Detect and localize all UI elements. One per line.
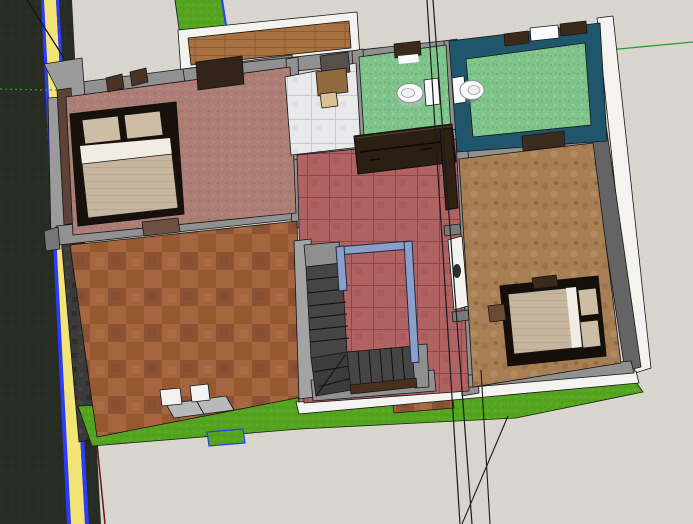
bed2-pillow-bottom xyxy=(580,320,601,348)
stair-landing-top[interactable] xyxy=(304,242,341,267)
desk-body xyxy=(316,68,348,96)
door-knob xyxy=(453,264,461,278)
wall-ledge-step[interactable] xyxy=(44,227,60,251)
white-door-frame-bottom xyxy=(452,310,469,322)
bath2-window-sill xyxy=(530,25,559,41)
lawn-notch[interactable] xyxy=(207,429,245,446)
toilet1-seat xyxy=(402,89,415,98)
nightstand[interactable] xyxy=(488,304,506,322)
wardrobe[interactable] xyxy=(196,56,244,90)
bed-2[interactable] xyxy=(500,275,606,366)
stone-cube-1[interactable] xyxy=(160,388,182,406)
bed-pillow-right xyxy=(124,111,163,139)
bath2-header-right xyxy=(560,21,587,36)
bed2-pillow-top xyxy=(578,288,599,316)
model-viewport[interactable] xyxy=(0,0,693,524)
white-door-frame-top xyxy=(444,224,461,236)
bed2-mattress xyxy=(508,288,574,354)
bath2-header-left xyxy=(504,31,529,46)
bed-pillow-left xyxy=(82,116,121,144)
bed-blanket xyxy=(82,154,178,218)
toilet2-seat xyxy=(468,86,480,95)
master-bed[interactable] xyxy=(70,102,184,226)
bathroom2-floor[interactable] xyxy=(466,43,591,137)
stool[interactable] xyxy=(320,92,338,108)
stone-cube-2[interactable] xyxy=(190,384,210,402)
